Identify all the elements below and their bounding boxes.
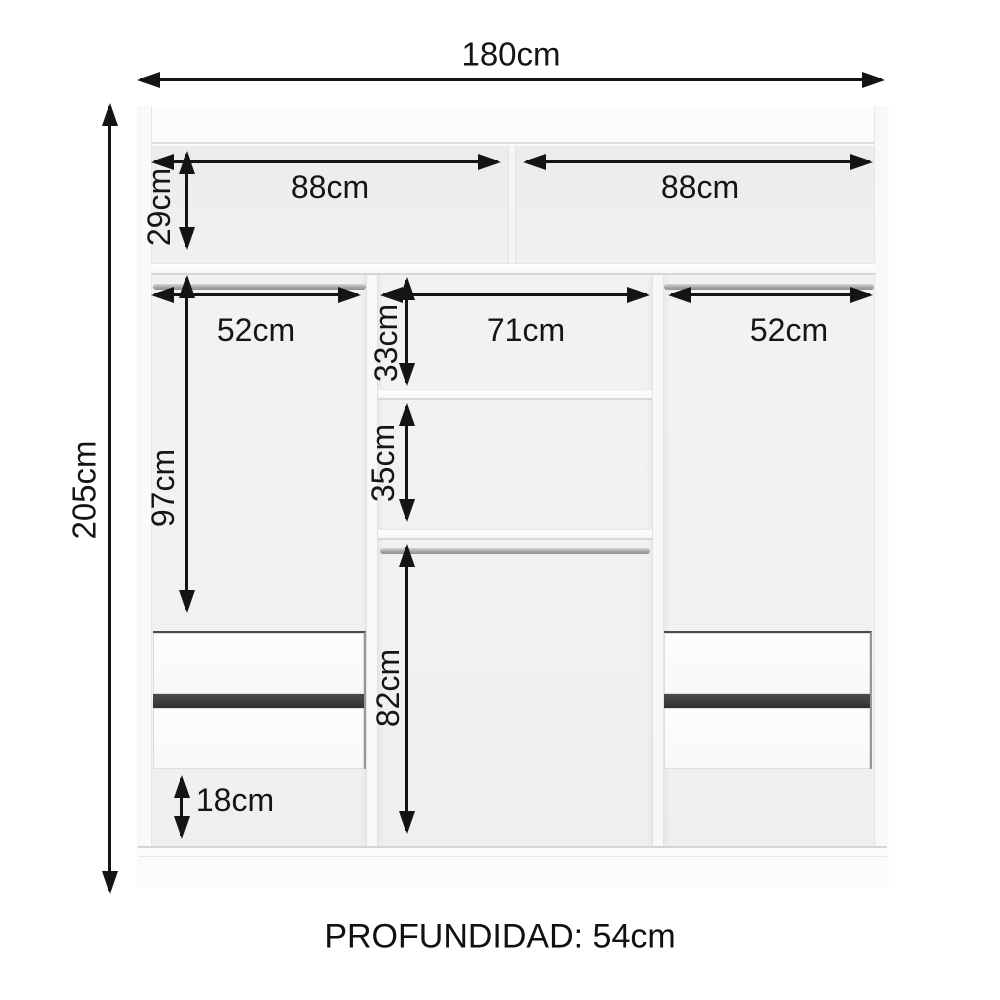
dimension-label-top-shelf-left: 88cm [291, 171, 369, 203]
center-shelf-upper [378, 389, 652, 400]
dimension-arrow-top-shelf-left [151, 154, 501, 170]
dimension-label-top-shelf-right: 88cm [661, 171, 739, 203]
depth-note: PROFUNDIDAD: 54cm [324, 918, 675, 957]
hanging-rod-center [380, 548, 650, 554]
center-shelf-lower [378, 529, 652, 540]
dimension-arrow-center-middle-height [399, 403, 415, 522]
plinth-edge-line [138, 856, 887, 857]
drawer-unit-left [153, 631, 366, 769]
dimension-arrow-right-section-width [668, 287, 873, 303]
dimension-label-center-lower-height: 82cm [372, 649, 404, 727]
drawer-front-top-right [664, 633, 870, 694]
dimension-arrow-bottom-left-height [174, 775, 190, 839]
dimension-arrow-top-shelf-right [523, 154, 873, 170]
dimension-arrow-top-section-height [179, 151, 195, 250]
right-column-divider [652, 275, 664, 846]
dimension-label-left-section-width: 52cm [217, 314, 295, 346]
dimension-label-center-section-width: 71cm [487, 314, 565, 346]
wardrobe-diagram: 180cm 205cm 88cm 88cm 29cm 52cm 71cm 52c… [0, 0, 1000, 1000]
dimension-label-bottom-left-height: 18cm [196, 784, 274, 816]
dimension-label-right-section-width: 52cm [750, 314, 828, 346]
drawer-unit-right [664, 631, 872, 769]
dimension-arrow-center-section-width [380, 287, 650, 303]
dimension-label-left-hanging-height: 97cm [147, 449, 179, 527]
dimension-label-overall-height: 205cm [68, 440, 101, 539]
top-center-divider [508, 146, 516, 263]
dimension-arrow-overall-height [102, 103, 118, 894]
dimension-label-overall-width: 180cm [461, 38, 560, 71]
dimension-arrow-left-hanging-height [179, 275, 195, 613]
drawer-front-top-left [153, 633, 364, 694]
drawer-gap-right [664, 694, 870, 708]
drawer-front-bottom-left [153, 708, 364, 769]
drawer-gap-left [153, 694, 364, 708]
dimension-label-center-middle-height: 35cm [367, 424, 399, 502]
dimension-label-center-upper-height: 33cm [370, 304, 402, 382]
dimension-arrow-overall-width [137, 72, 885, 88]
dimension-label-top-section-height: 29cm [143, 168, 175, 246]
right-side-panel [874, 106, 889, 888]
drawer-front-bottom-right [664, 708, 870, 769]
top-shelf [151, 263, 876, 275]
cabinet-top-panel [137, 106, 888, 144]
plinth [138, 846, 887, 888]
